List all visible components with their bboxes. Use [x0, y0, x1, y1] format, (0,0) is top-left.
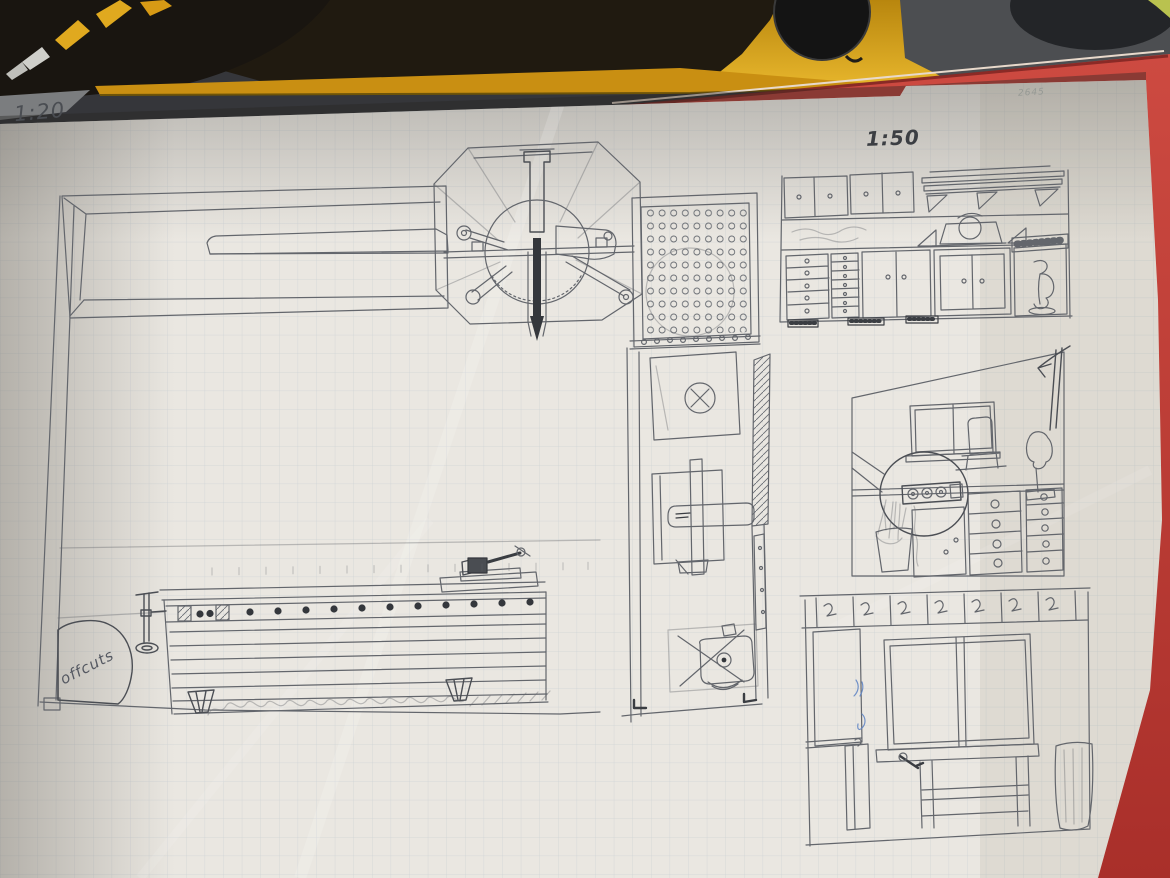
photo-of-workshop-plan: 1:20 1:50 offcuts 2645 — [0, 0, 1170, 878]
pegboard-drawing — [630, 193, 760, 349]
photo-canvas — [0, 0, 1170, 878]
